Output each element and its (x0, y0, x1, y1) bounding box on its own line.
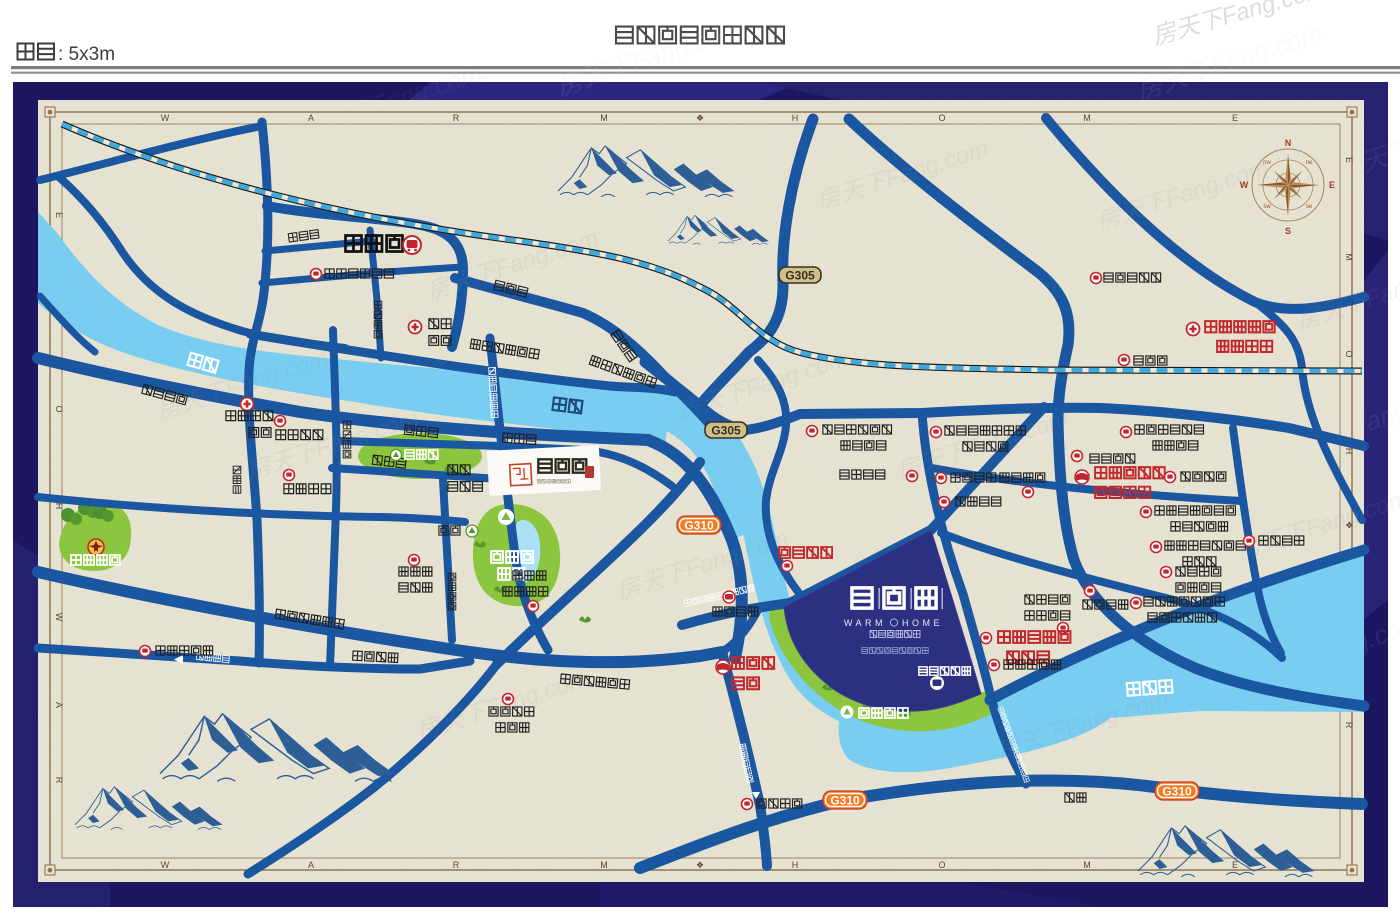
svg-text:M: M (1344, 253, 1354, 261)
svg-text:❖: ❖ (696, 113, 704, 123)
svg-text:H: H (792, 113, 799, 123)
svg-text:M: M (600, 113, 608, 123)
svg-text:N: N (1285, 138, 1292, 148)
svg-text:R: R (453, 113, 460, 123)
svg-text:O: O (938, 113, 945, 123)
svg-text:M: M (1083, 860, 1091, 870)
svg-text:E: E (1329, 180, 1335, 190)
svg-text:✸: ✸ (1349, 866, 1356, 875)
svg-text:E: E (1344, 157, 1354, 163)
svg-text:S: S (1285, 226, 1291, 236)
svg-text:G310: G310 (684, 519, 714, 533)
svg-text:R: R (54, 777, 64, 784)
svg-text:E: E (54, 212, 64, 218)
svg-text:W: W (161, 113, 170, 123)
svg-text:WARM: WARM (844, 618, 886, 628)
svg-text:✸: ✸ (47, 108, 54, 117)
svg-text:A: A (54, 702, 64, 708)
svg-text:E: E (1232, 113, 1238, 123)
svg-text:O: O (1344, 350, 1354, 357)
svg-text:W: W (54, 613, 64, 622)
svg-text:O: O (938, 860, 945, 870)
svg-text:A: A (308, 113, 314, 123)
svg-text:W: W (161, 860, 170, 870)
svg-text:H: H (792, 860, 799, 870)
svg-text:❖: ❖ (696, 860, 704, 870)
svg-text:✸: ✸ (47, 866, 54, 875)
svg-text:G305: G305 (785, 269, 815, 283)
svg-text:O: O (54, 405, 64, 412)
svg-text:A: A (308, 860, 314, 870)
svg-text:HOME: HOME (902, 618, 943, 628)
svg-text:H: H (54, 503, 64, 510)
svg-text:R: R (453, 860, 460, 870)
svg-text:E: E (1232, 860, 1238, 870)
svg-text:✸: ✸ (1349, 108, 1356, 117)
svg-text:ne: ne (1306, 160, 1313, 166)
svg-text:M: M (1083, 113, 1091, 123)
svg-text:G305: G305 (711, 424, 741, 438)
svg-text:G310: G310 (1162, 785, 1192, 799)
svg-text:sw: sw (1263, 204, 1271, 210)
svg-text:: 5x3m: : 5x3m (58, 44, 115, 65)
svg-text:H: H (1344, 448, 1354, 455)
svg-text:R: R (1344, 722, 1354, 729)
svg-text:M: M (600, 860, 608, 870)
svg-text:G310: G310 (830, 794, 860, 808)
svg-text:se: se (1306, 204, 1313, 210)
